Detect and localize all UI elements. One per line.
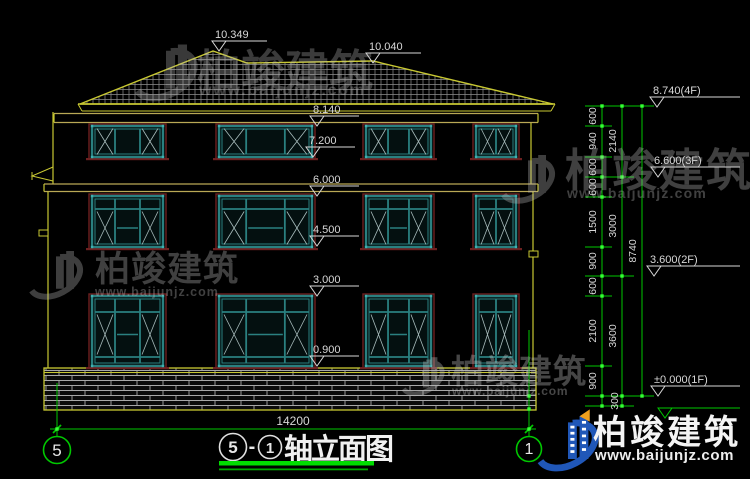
frame-grip [515,156,517,158]
cad-elevation-screenshot: 10.34910.0408.1407.2006.0004.5003.0000.9… [0,0,750,479]
chain-subtotal-value: 3600 [607,324,619,348]
level-value: 10.040 [369,41,403,53]
frame-grip [430,295,432,297]
grip-dot [620,104,623,107]
frame-grip [91,246,93,248]
window-frame [366,126,431,157]
frame-grip [162,195,164,197]
axis-number-left: 5 [52,441,61,460]
axis-number-right: 1 [525,441,534,458]
title-axis-number: 5 [228,438,237,457]
elevation-drawing: 10.34910.0408.1407.2006.0004.5003.0000.9… [0,0,750,479]
frame-grip [218,125,220,127]
frame-grip [365,195,367,197]
watermark-url: www.baijunjz.com [451,384,568,398]
logo-window-dots [582,435,586,438]
window-frame [219,126,312,157]
chain-subtotal-value: 3000 [607,214,619,238]
level-value: 7.200 [309,135,337,147]
frame-grip [430,156,432,158]
window-frame [219,196,312,247]
frame-grip [515,295,517,297]
grip-dot [527,427,530,430]
grip-dot [55,427,58,430]
watermark-url: www.baijunjz.com [94,285,219,299]
logo-tower [538,155,546,193]
window [360,194,437,250]
frame-grip [515,125,517,127]
frame-grip [365,365,367,367]
drawing-title: 轴立面图 [284,432,393,466]
grip-dot [620,274,623,277]
frame-grip [162,125,164,127]
frame-grip [475,295,477,297]
grip-dot [600,274,603,277]
window [213,294,318,369]
logo-window-dots [570,426,574,429]
window [213,124,318,160]
logo-window-dots [582,428,586,431]
frame-grip [430,125,432,127]
frame-grip [475,195,477,197]
frame-grip [311,125,313,127]
grip-dot [600,294,603,297]
watermark-url: www.baijunjz.com [594,447,734,464]
frame-grip [91,365,93,367]
frame-grip [365,125,367,127]
frame-grip [91,156,93,158]
frame-grip [162,246,164,248]
frame-grip [91,295,93,297]
frame-grip [162,156,164,158]
grip-dot [600,404,603,407]
chain-segment-value: 600 [587,107,599,125]
window-sill [213,367,318,369]
chain-segment-value: 2100 [587,319,599,343]
title-dash: - [249,436,256,458]
window [360,294,437,369]
title-underline-thin [219,469,368,471]
level-value: 0.900 [313,344,341,356]
window-sill [470,248,522,250]
watermark-url: www.baijunjz.com [198,82,366,99]
frame-grip [91,195,93,197]
chain-segment-value: 900 [587,372,599,390]
level-value: ±0.000(1F) [654,374,708,386]
frame-grip [365,156,367,158]
logo-tower [528,160,536,192]
watermark-brand: 柏竣建筑 [95,249,239,289]
grip-dot [640,104,643,107]
title-axis-number: 1 [266,440,274,457]
logo-window-dots [570,444,574,447]
window-frame [219,296,312,366]
logo-tower [66,251,74,289]
window-sill [86,158,169,160]
logo-tower [423,362,429,388]
grip-dot [527,407,530,410]
logo-window-dots [582,421,586,424]
watermark-url: www.baijunjz.com [566,185,707,201]
grip-dot [600,394,603,397]
logo-tower [431,357,437,387]
frame-grip [162,365,164,367]
frame-grip [475,246,477,248]
frame-grip [311,195,313,197]
chain-segment-value: 300 [609,392,621,410]
level-value: 4.500 [313,224,341,236]
window-frame [92,296,163,366]
window-frame [92,126,163,157]
level-value: 10.349 [215,29,249,41]
logo-window-dots [570,438,574,441]
frame-grip [475,125,477,127]
window [470,124,522,160]
logo-tower [178,45,187,89]
window [213,194,318,250]
frame-grip [311,295,313,297]
grip-dot [640,394,643,397]
chain-total-value: 8740 [627,239,639,263]
window [360,124,437,160]
window-sill [470,158,522,160]
logo-window-dots [582,448,586,451]
logo-tower [166,51,175,89]
level-value: 3.600(2F) [650,254,698,266]
window-sill [360,158,437,160]
frame-grip [311,365,313,367]
window [86,194,169,250]
level-value: 8.140 [313,104,341,116]
frame-grip [365,246,367,248]
level-value: 6.000 [313,174,341,186]
overall-width-value: 14200 [276,414,310,428]
frame-grip [311,246,313,248]
frame-grip [515,246,517,248]
frame-grip [218,195,220,197]
grip-dot [600,245,603,248]
logo-window-dots [582,441,586,444]
title-underline-thick [219,461,374,466]
grip-dot [600,364,603,367]
left-ledge [39,230,48,236]
window-sill [86,367,169,369]
frame-grip [515,195,517,197]
logo-tower [56,256,64,288]
frame-grip [91,125,93,127]
right-ledge [529,251,538,257]
window-frame [366,296,431,366]
frame-grip [475,156,477,158]
frame-grip [218,246,220,248]
frame-grip [218,365,220,367]
logo-window-dots [570,432,574,435]
window-sill [213,158,318,160]
grip-dot [600,124,603,127]
window-frame [92,196,163,247]
chain-segment-value: 600 [587,277,599,295]
window [86,294,169,369]
window-sill [360,248,437,250]
grip-dot [600,104,603,107]
frame-grip [218,156,220,158]
chain-segment-value: 900 [587,252,599,270]
window [86,124,169,160]
frame-grip [365,295,367,297]
logo-window-dots [570,450,574,453]
level-value: 8.740(4F) [653,85,701,97]
frame-grip [430,195,432,197]
level-value: 3.000 [313,274,341,286]
chain-segment-value: 1500 [587,210,599,234]
frame-grip [430,246,432,248]
